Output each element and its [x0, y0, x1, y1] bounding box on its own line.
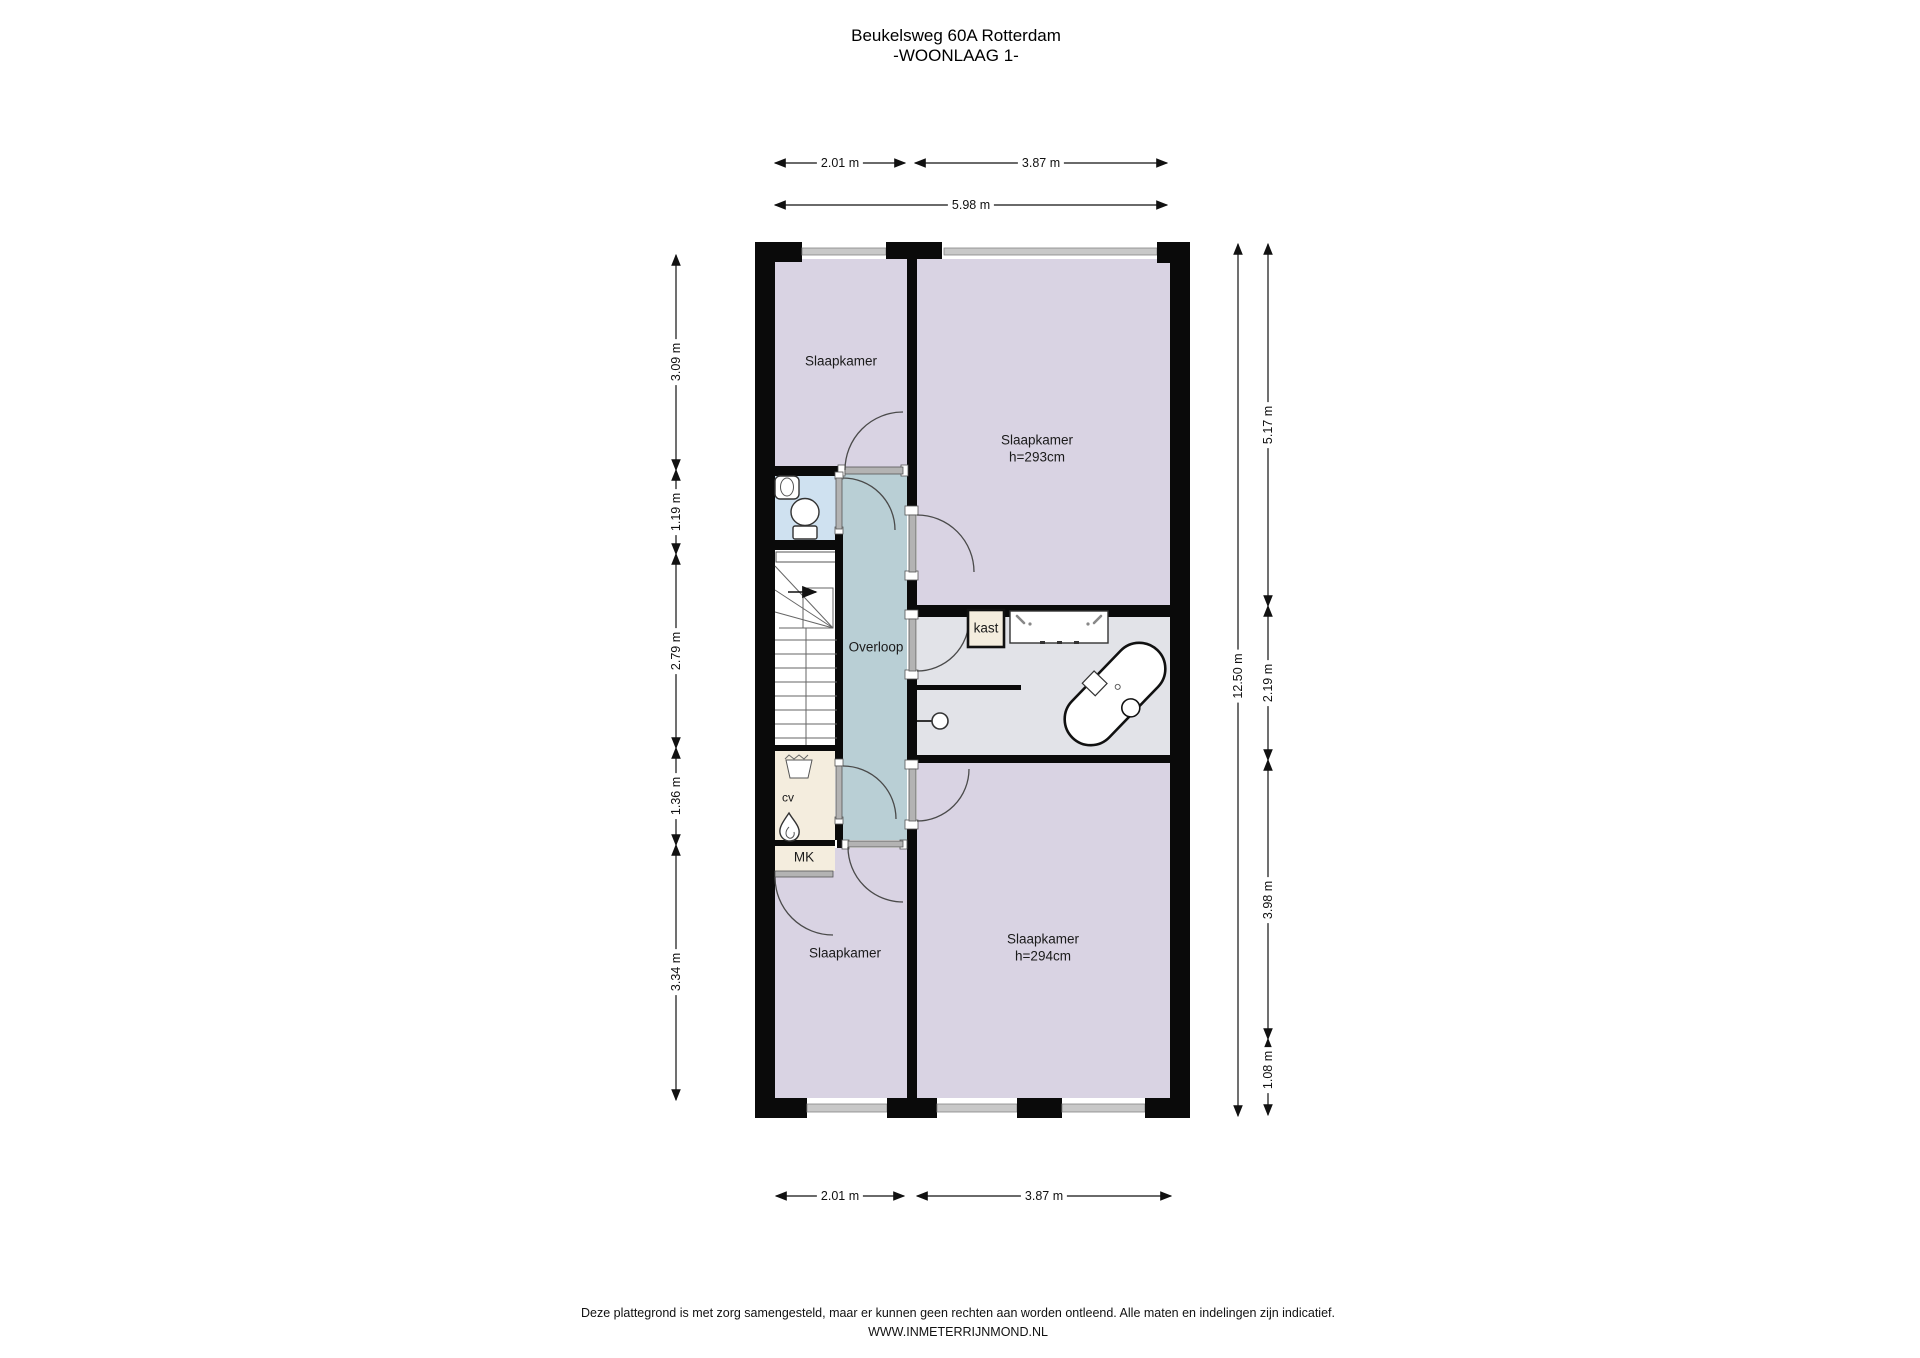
dimension-label: 1.08 m [1261, 1047, 1275, 1093]
label-slaapkamer-top-right-height: h=293cm [1009, 450, 1065, 467]
dimension-label: 5.17 m [1261, 402, 1275, 448]
window-top-left [802, 248, 886, 255]
door-bathroom [909, 619, 916, 671]
window-top-right [944, 248, 1157, 255]
window-bottom-right [1062, 1104, 1145, 1112]
footer: Deze plattegrond is met zorg samengestel… [581, 1304, 1335, 1342]
label-overloop: Overloop [849, 640, 904, 657]
label-slaapkamer-top-left: Slaapkamer [805, 354, 877, 371]
label-slaapkamer-bottom-right: Slaapkamer [1007, 932, 1079, 949]
dimension-label: 1.36 m [669, 773, 683, 819]
dimension-label: 3.34 m [669, 949, 683, 995]
dimension-label: 2.79 m [669, 628, 683, 674]
dimension-label: 12.50 m [1231, 649, 1245, 702]
door-toilet [836, 478, 842, 529]
room-overloop [837, 473, 907, 840]
window-bottom-left [807, 1104, 887, 1112]
footer-disclaimer: Deze plattegrond is met zorg samengestel… [581, 1304, 1335, 1323]
dimension-label: 2.01 m [817, 1189, 863, 1203]
window-bottom-middle [937, 1104, 1017, 1112]
footer-website: WWW.INMETERRIJNMOND.NL [581, 1323, 1335, 1342]
title-address: Beukelsweg 60A Rotterdam [851, 26, 1061, 46]
dimension-label: 3.98 m [1261, 877, 1275, 923]
label-cv: cv [782, 791, 794, 806]
label-slaapkamer-bottom-right-height: h=294cm [1015, 949, 1071, 966]
label-slaapkamer-top-right: Slaapkamer [1001, 433, 1073, 450]
dimension-label: 1.19 m [669, 489, 683, 535]
door-bottom-right-bedroom [909, 769, 916, 821]
label-slaapkamer-bottom-left: Slaapkamer [809, 946, 881, 963]
toilet [791, 499, 819, 526]
room-slaapkamer-bottom-right [917, 763, 1170, 1098]
dimension-label: 3.09 m [669, 339, 683, 385]
staircase [775, 566, 837, 745]
label-kast: kast [974, 621, 999, 638]
dimension-label: 3.87 m [1018, 156, 1064, 170]
vanity-counter [1010, 611, 1108, 643]
dimension-label: 2.01 m [817, 156, 863, 170]
door-top-right-bedroom [909, 515, 916, 572]
stair-landing [776, 552, 836, 562]
floorplan-page: Beukelsweg 60A Rotterdam -WOONLAAG 1- Sl… [0, 0, 1920, 1358]
room-slaapkamer-bottom-left [775, 848, 907, 1098]
door-bottom-left-bedroom [848, 841, 903, 847]
door-top-left-bedroom [845, 467, 903, 474]
dimension-label: 2.19 m [1261, 660, 1275, 706]
dimension-label: 5.98 m [948, 198, 994, 212]
page-title: Beukelsweg 60A Rotterdam -WOONLAAG 1- [851, 26, 1061, 66]
shower-half-wall [917, 685, 1021, 690]
door-cv [836, 766, 842, 819]
dimension-label: 3.87 m [1021, 1189, 1067, 1203]
shower-head-icon [932, 713, 948, 729]
title-floor: -WOONLAAG 1- [851, 46, 1061, 66]
door-meterkast [775, 871, 833, 877]
washing-machine-icon [786, 760, 812, 778]
label-meterkast: MK [794, 850, 814, 867]
